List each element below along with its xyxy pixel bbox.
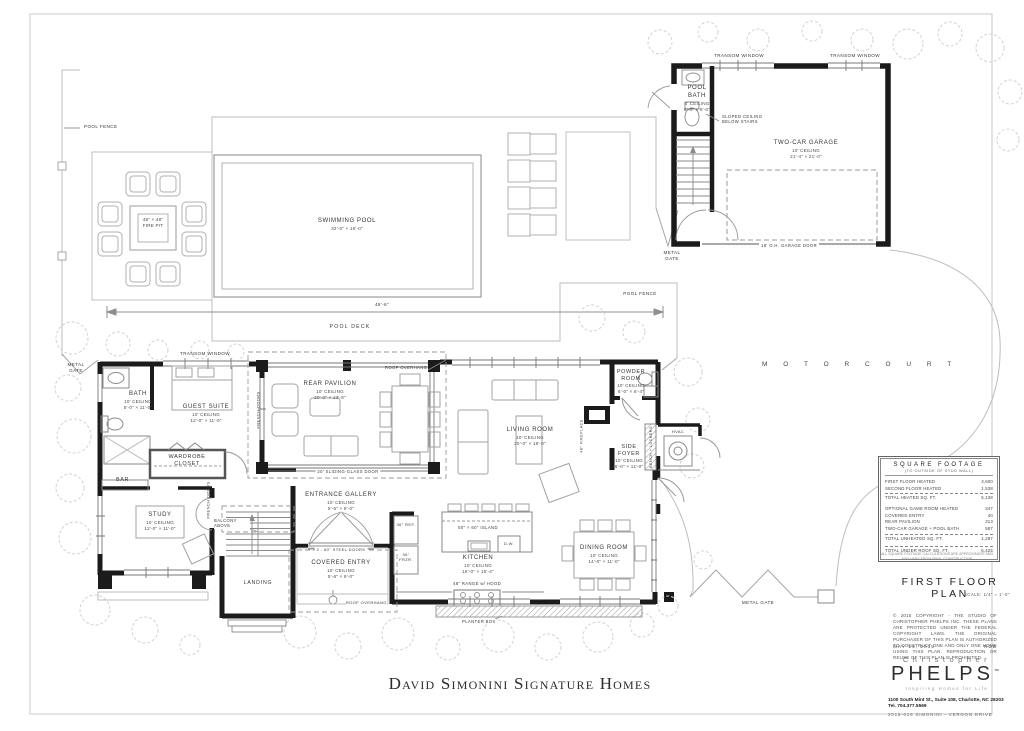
sf-row: COVERED ENTRY40	[885, 513, 993, 520]
island-label: 50" × 60" ISLAND	[458, 525, 498, 530]
firm-address-block: 1100 South Mint St., Suite 108, Charlott…	[888, 698, 1006, 718]
guest-suite-label: GUEST SUITE10' CEILING12'-0" × 11'-0"	[183, 404, 230, 424]
metal-gate-garage: METAL GATE	[659, 250, 685, 262]
hvac-label: HVAC	[672, 429, 684, 434]
dining-room-label: DINING ROOM10' CEILING14'-0" × 11'-0"	[580, 545, 628, 565]
fire-pit-chairs	[98, 172, 206, 286]
pool-fence-label-right: POOL FENCE	[623, 291, 656, 296]
planter-box-label: PLANTER BOX	[462, 619, 496, 624]
fire-pit-label: 48" × 48"FIRE PIT	[133, 217, 173, 229]
roof-overhang-label-1: ROOF OVERHANG	[385, 365, 427, 370]
metal-gate-left: METAL GATE	[63, 362, 89, 374]
dw-label: D.W.	[504, 541, 514, 546]
frzr-label: 36" FRZR.	[396, 552, 416, 562]
windows	[96, 357, 657, 607]
motor-court-label: M O T O R C O U R T	[762, 361, 958, 368]
sf-row: REAR PAVILION313	[885, 519, 993, 526]
plan-date: MAY 14, 2015	[893, 645, 935, 650]
sf-row: OPTIONAL GAME ROOM HEATED347	[885, 506, 993, 513]
covered-entry-label: COVERED ENTRY10' CEILING5'-6" × 9'-0"	[311, 560, 370, 580]
transom-label-2: TRANSOM WINDOW	[830, 53, 880, 58]
bath-label: BATH10' CEILING5'-0" × 11'-0"	[124, 391, 153, 411]
french-doors-label-2: FRENCH DOORS	[206, 481, 211, 518]
deck-planter	[566, 132, 630, 240]
ref-label: 36" REF.	[396, 522, 416, 527]
side-foyer-label: SIDE FOYER 10' CEILING6'-0" × 11'-0"	[612, 444, 646, 470]
floor-plan-sheet: POOL FENCE POOL FENCE 48" × 48"FIRE PIT …	[0, 0, 1024, 731]
range-label: 48" RANGE w/ HOOD	[451, 581, 503, 586]
builder-title: David Simonini Signature Homes	[389, 674, 652, 694]
date-row: MAY 14, 2015 RDB	[893, 645, 997, 650]
wardrobe-label: WARDROBE CLOSET	[163, 454, 211, 468]
deck-dimension-label: 48'-6"	[375, 302, 389, 307]
transom-label-1: TRANSOM WINDOW	[714, 53, 764, 58]
trademark-mark: ™	[994, 668, 1003, 674]
chaise-lounges	[508, 133, 556, 236]
pool-fence-label-left: POOL FENCE	[84, 124, 117, 129]
fireplace-label: 48" FIREPLACE	[579, 419, 584, 453]
swimming-pool-label: SWIMMING POOL32'-0" × 16'-0"	[318, 218, 376, 232]
logo-last-name: PHELPS™	[888, 664, 1006, 685]
pool-deck-label: POOL DECK	[330, 324, 371, 330]
sf-row: SECOND FLOOR HEATED1,538	[885, 486, 993, 493]
kitchen-label: KITCHEN10' CEILING18'-0" × 15'-4"	[462, 555, 494, 575]
pool-bath-label: POOL BATH 8' CEILING 6'-0" × 8'-0"	[680, 85, 714, 113]
square-footage-table: SQUARE FOOTAGE (TO OUTSIDE OF STUD WALL)…	[878, 456, 1000, 562]
rear-pavilion	[248, 352, 446, 478]
balcony-above-label: BALCONY ABOVE	[214, 518, 250, 529]
living-room-label: LIVING ROOM10' CEILING20'-0" × 18'-0"	[507, 427, 554, 447]
sf-row-total: TOTAL UNHEATED SQ. FT.1,287	[885, 534, 993, 543]
bar-label: BAR	[116, 477, 129, 483]
metal-gate-right: METAL GATE	[742, 600, 774, 605]
logo-tagline: Inspiring Homes for Life	[888, 686, 1006, 691]
garage-door-label: 18' O.H. GARAGE DOOR	[759, 243, 819, 248]
sf-footnote: ALL SQUARE FOOTAGE CALCULATIONS ARE APPR…	[880, 552, 994, 562]
transom-label-3: TRANSOM WINDOW	[180, 351, 230, 356]
sf-row: FIRST FLOOR HEATED3,600	[885, 479, 993, 486]
sf-subtitle: (TO OUTSIDE OF STUD WALL)	[885, 468, 993, 476]
entry-doors	[297, 512, 388, 604]
study-label: STUDY10' CEILING12'-0" × 11'-0"	[144, 512, 175, 532]
drawn-by: RDB	[984, 645, 997, 650]
roof-overhang-label-2: ROOF OVERHANG	[346, 600, 387, 605]
pool-area	[92, 132, 630, 300]
garage-label: TWO-CAR GARAGE 10' CEILING 21'-4" × 21'-…	[774, 140, 838, 160]
powder-room-label: POWDER ROOM 10' CEILING6'-0" × 6'-4"	[612, 369, 650, 395]
project-number: 2015-019 SIMONINI - VERNON DRIVE	[888, 712, 1006, 718]
french-doors-label-1: FRENCH DOORS	[256, 391, 261, 428]
sf-row-total: TOTAL HEATED SQ. FT.5,138	[885, 493, 993, 502]
phelps-logo: Christopher PHELPS™ Inspiring Homes for …	[888, 655, 1006, 691]
sf-row: TWO-CAR GARAGE + POOL BATH587	[885, 526, 993, 533]
garage-door-dashed	[727, 170, 877, 240]
sloped-ceiling-label: SLOPED CEILING BELOW STAIRS	[722, 114, 774, 125]
sliding-door-label: 20' SLIDING-GLASS DOOR	[315, 469, 380, 474]
firm-phone: Tel. 704.377.5569	[888, 704, 1006, 710]
rear-pavilion-label: REAR PAVILION10' CEILING20'-0" × 13'-8"	[304, 381, 357, 401]
plan-scale: SCALE: 1/4" = 1'-0"	[886, 592, 1010, 597]
house-walls	[100, 362, 700, 618]
entrance-gallery-label: ENTRANCE GALLERY10' CEILING5'-6" × 8'-0"	[305, 492, 377, 512]
bench-lockers-label: BENCH + LOCKERS	[649, 426, 653, 468]
steel-doors-label: 2 - 60" STEEL DOORS	[315, 547, 368, 552]
landing-label: LANDING	[244, 580, 273, 586]
